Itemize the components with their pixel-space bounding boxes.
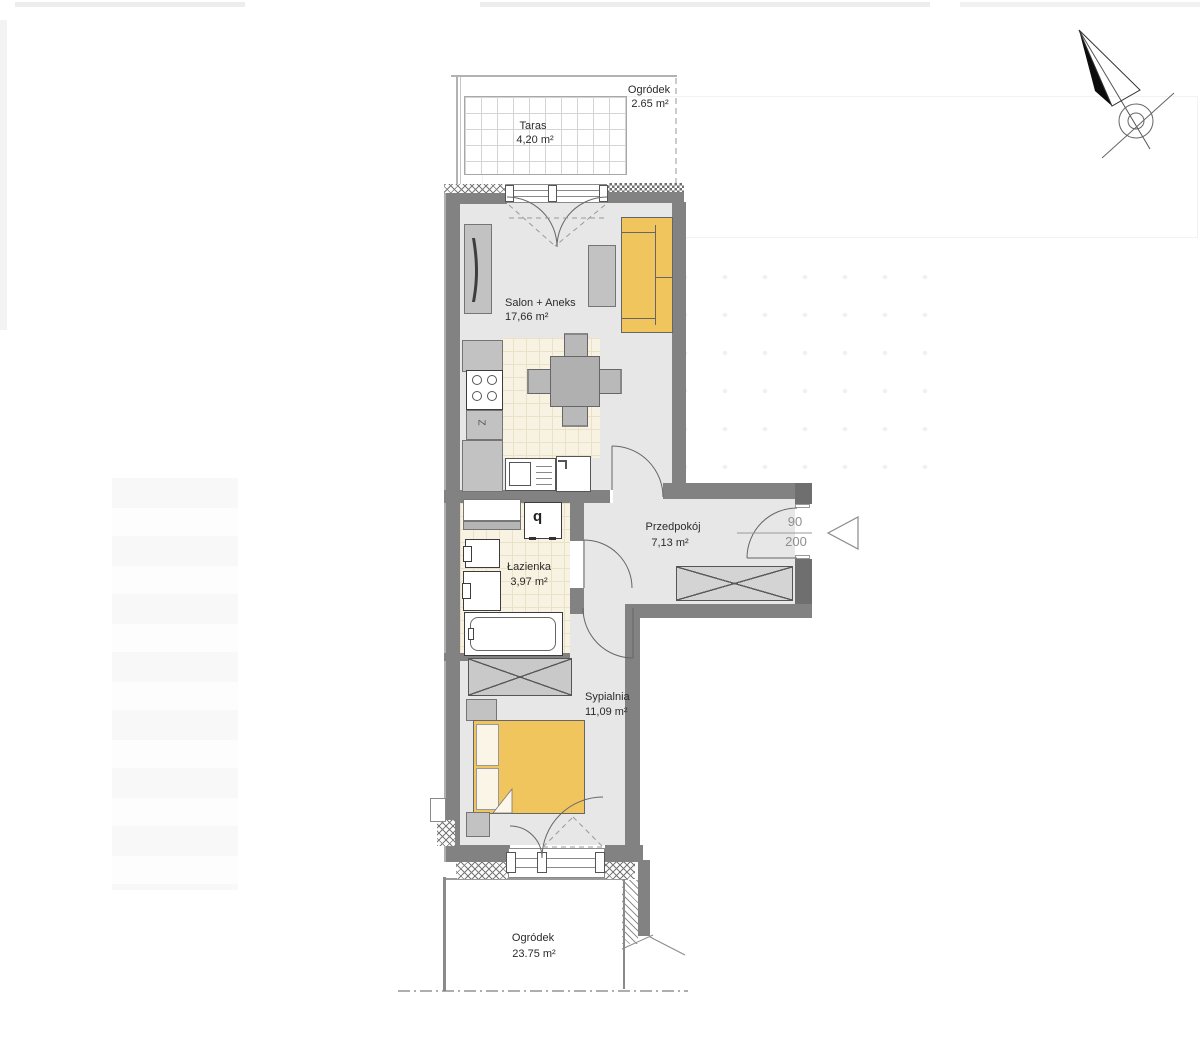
side-table xyxy=(588,245,616,307)
sink-drainer-line xyxy=(536,484,552,485)
burner xyxy=(487,391,497,401)
room-area-lazienka: 3,97 m² xyxy=(510,576,547,588)
balcony-door-top-rail xyxy=(507,196,607,197)
cooktop xyxy=(466,370,503,410)
bedroom-door-floor xyxy=(583,602,625,615)
sink-drainer-line xyxy=(536,478,552,479)
wall-hallway-top xyxy=(663,483,795,499)
room-label-lazienka: Łazienka xyxy=(507,561,551,573)
room-label-taras: Taras xyxy=(520,120,547,132)
dining-chair-right xyxy=(597,369,622,394)
kitchen-door-jamb-tick xyxy=(610,490,613,503)
nightstand xyxy=(466,699,497,721)
room-area-salon: 17,66 m² xyxy=(505,311,548,323)
room-area-ogrodek-bottom: 23.75 m² xyxy=(512,948,555,960)
bathroom-shelf-edge xyxy=(463,521,521,530)
room-area-ogrodek-top: 2.65 m² xyxy=(631,98,668,110)
ghost-trace xyxy=(0,20,7,330)
washing-machine xyxy=(524,502,562,539)
wall-left-exterior xyxy=(446,193,460,862)
balcony-door-bottom-mullion xyxy=(537,852,547,873)
terrace-edge-line xyxy=(456,77,458,185)
balcony-door-bottom xyxy=(508,848,605,878)
entrance-door-width: 90 xyxy=(788,514,802,529)
room-label-sypialnia: Sypialnia xyxy=(585,691,630,703)
sink-drainer-line xyxy=(536,472,552,473)
balcony-door-bottom-jamb xyxy=(595,852,605,873)
wall-salon-right xyxy=(672,202,686,483)
dining-chair-left xyxy=(527,369,551,394)
sofa xyxy=(621,217,673,333)
wall-hatch-bottom-right xyxy=(605,862,635,879)
entrance-door-height: 200 xyxy=(785,534,807,549)
bathtub-inner xyxy=(470,617,556,651)
pillow xyxy=(476,768,499,810)
washbasin-tap xyxy=(462,583,471,599)
bedroom-floor-upper xyxy=(570,614,625,661)
sofa-armrest-line xyxy=(621,232,655,233)
sofa-armrest-line xyxy=(621,318,655,319)
balcony-door-top-jamb xyxy=(599,185,608,202)
bathtub-tap xyxy=(468,628,474,640)
burner xyxy=(487,375,497,385)
terrace-edge-line xyxy=(460,77,461,185)
ghost-trace xyxy=(15,2,245,7)
wall-bedroom-bottom-left xyxy=(446,845,510,862)
ghost-trace xyxy=(960,2,1200,7)
dining-table xyxy=(550,356,600,407)
faucet-icon xyxy=(565,460,567,469)
washer-foot xyxy=(549,537,556,540)
balcony-door-top-mullion xyxy=(548,185,557,202)
garden-corner-line xyxy=(650,937,685,955)
fridge-symbol: Z xyxy=(476,419,487,425)
burner xyxy=(472,375,482,385)
entrance-jamb-top xyxy=(795,483,812,504)
room-area-sypialnia: 11,09 m² xyxy=(585,706,628,718)
washer-foot xyxy=(529,537,536,540)
wardrobe-hallway xyxy=(676,566,793,601)
sofa-seam-line xyxy=(655,277,673,278)
exterior-pillar xyxy=(430,798,446,822)
washing-machine-symbol: q xyxy=(533,508,542,525)
wall-bedroom-bottom-right xyxy=(605,845,643,862)
ghost-trace xyxy=(112,478,238,890)
room-label-przedpokoj: Przedpokój xyxy=(645,521,700,533)
toilet-tank xyxy=(463,546,472,562)
sink-drainer-line xyxy=(536,466,552,467)
burner xyxy=(472,391,482,401)
floor-plan-canvas: Z q Taras 4,20 m² Ogródek 2.65 m² Salon … xyxy=(0,0,1200,1060)
room-label-ogrodek-top: Ogródek xyxy=(628,84,670,96)
kitchen-counter xyxy=(462,340,503,372)
wall-hatch-bottom-left xyxy=(456,862,508,879)
garden-left-line xyxy=(443,877,446,991)
room-area-przedpokoj: 7,13 m² xyxy=(651,537,688,549)
wall-bathroom-right-top xyxy=(570,503,584,541)
balcony-door-bottom-rail xyxy=(508,858,605,859)
balcony-door-bottom-jamb xyxy=(506,852,516,873)
room-label-ogrodek-bottom: Ogródek xyxy=(512,932,554,944)
garden-wall-hatch xyxy=(622,880,638,944)
wall-hatch-left-end xyxy=(437,820,455,846)
dining-chair-top xyxy=(564,333,588,357)
kitchen-counter xyxy=(462,440,503,492)
balcony-door-top-rail xyxy=(507,190,607,191)
nightstand xyxy=(466,812,490,837)
wardrobe-bedroom xyxy=(468,658,572,696)
sofa-back-line xyxy=(655,225,656,325)
sink-basin xyxy=(509,462,531,486)
tv-cabinet xyxy=(464,224,492,314)
pillow xyxy=(476,724,499,766)
bathroom-shelf xyxy=(463,499,521,521)
entrance-jamb-tick xyxy=(795,555,810,559)
balcony-door-top-jamb xyxy=(505,185,514,202)
balcony-door-top xyxy=(507,184,607,203)
balcony-door-bottom-rail xyxy=(508,867,605,868)
wall-hallway-bottom xyxy=(633,604,812,618)
room-area-taras: 4,20 m² xyxy=(516,134,553,146)
ghost-trace xyxy=(480,2,930,7)
entrance-jamb-tick xyxy=(795,504,810,508)
wall-bathroom-right-bottom xyxy=(570,588,584,614)
garden-separation-wall xyxy=(638,860,650,936)
wall-bedroom-right xyxy=(625,604,640,860)
room-label-salon: Salon + Aneks xyxy=(505,297,576,309)
site-boundary-top xyxy=(451,75,677,77)
entrance-arrow-icon xyxy=(828,517,858,549)
